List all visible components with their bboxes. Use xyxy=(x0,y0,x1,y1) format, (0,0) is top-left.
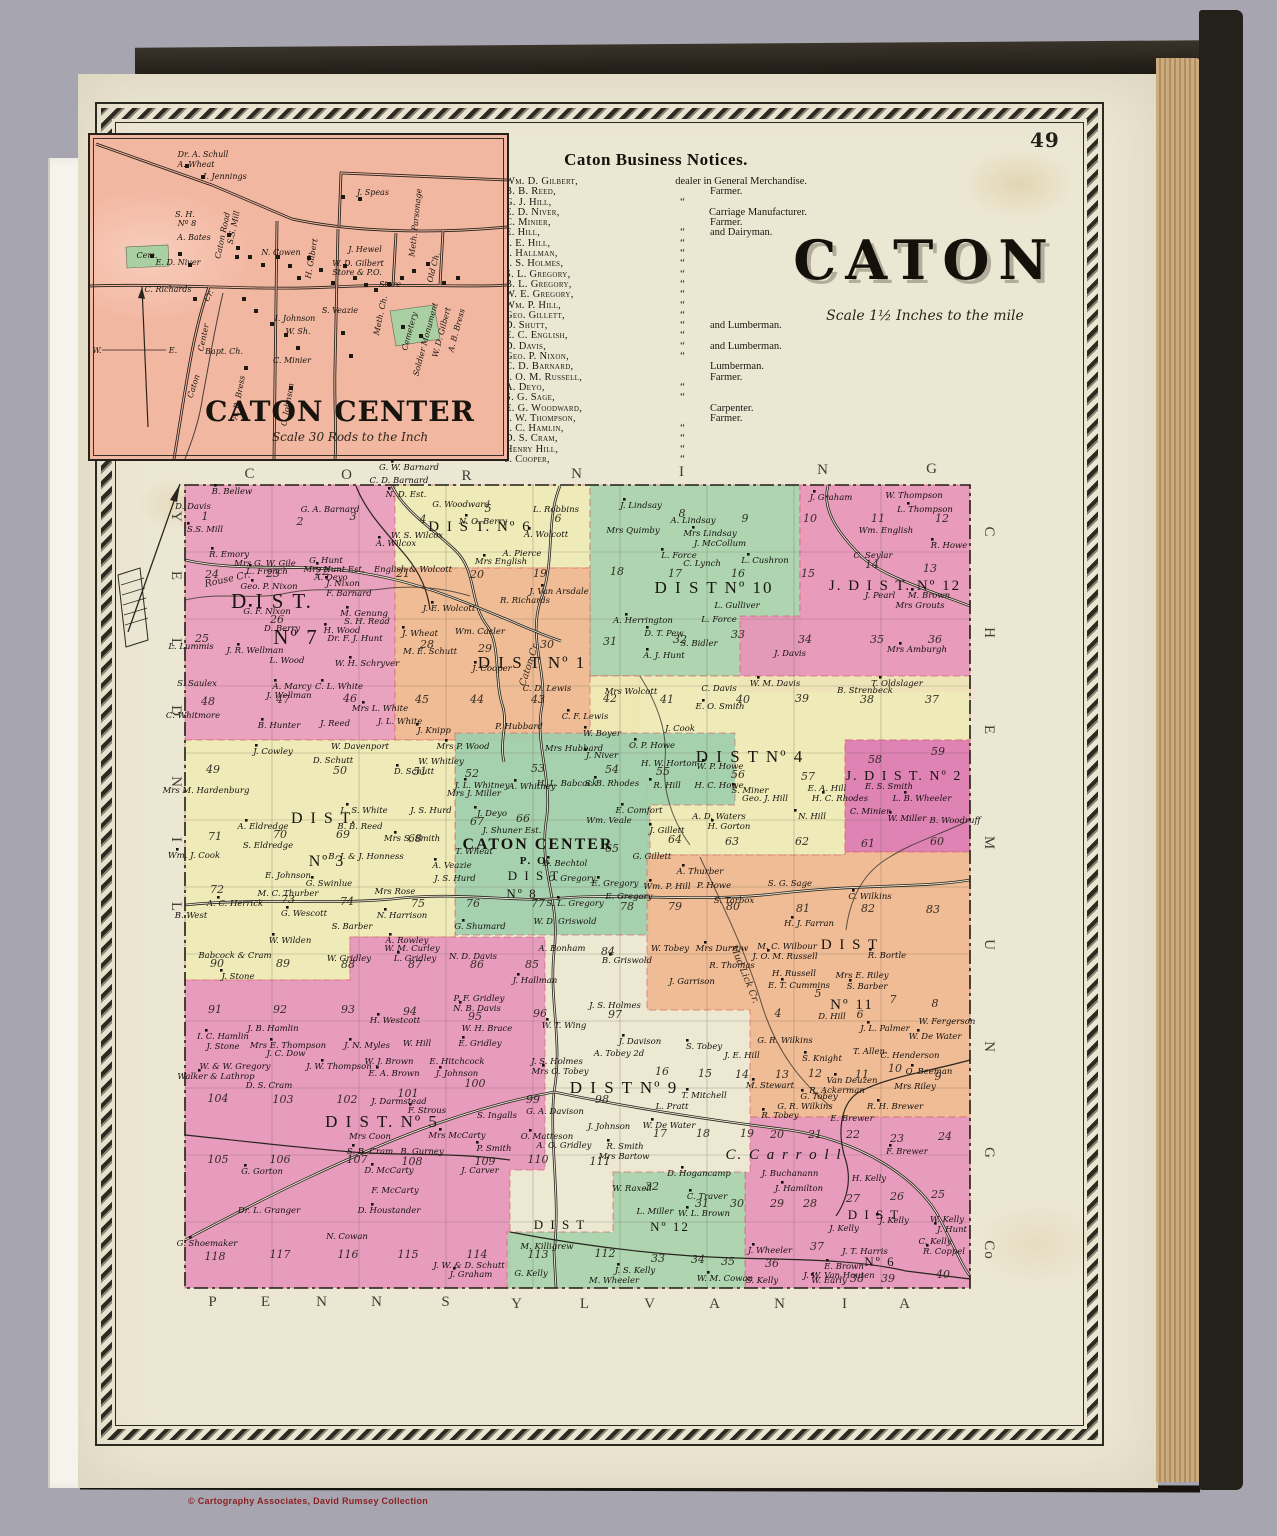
map-title: CATON xyxy=(775,228,1075,292)
svg-text:A. Bates: A. Bates xyxy=(176,233,211,242)
svg-text:H. Gilbert: H. Gilbert xyxy=(303,237,319,280)
notice-trade xyxy=(710,445,807,455)
collection-credit: © Cartography Associates, David Rumsey C… xyxy=(188,1496,428,1506)
inset-map-caton-center: Dr. A. SchullA. WheatI. JenningsJ. Speas… xyxy=(88,133,509,461)
svg-text:J. Speas: J. Speas xyxy=(355,188,389,197)
svg-text:S. H.: S. H. xyxy=(175,210,195,219)
svg-text:Meth. Parsonage: Meth. Parsonage xyxy=(407,188,423,259)
svg-text:Cr.: Cr. xyxy=(202,288,216,303)
notice-ditto: “ xyxy=(655,198,710,208)
notice-ditto xyxy=(655,404,710,414)
svg-text:I. Jennings: I. Jennings xyxy=(202,172,246,181)
notice-ditto xyxy=(655,362,710,372)
svg-text:E. D. Niver: E. D. Niver xyxy=(155,258,202,267)
notice-trade xyxy=(710,393,807,403)
svg-text:W.: W. xyxy=(92,346,101,355)
book-fore-edge xyxy=(1156,58,1200,1482)
svg-text:S. Veazie: S. Veazie xyxy=(322,306,359,315)
notice-row: J. Cooper,“ xyxy=(505,455,807,465)
svg-text:C. Minier: C. Minier xyxy=(273,356,312,365)
notice-trade: Farmer. xyxy=(710,414,807,424)
business-notices: Caton Business Notices. Wm. D. Gilbert,d… xyxy=(505,150,807,465)
svg-text:Bapt. Ch.: Bapt. Ch. xyxy=(204,347,243,356)
notice-row: Henry Hill,“ xyxy=(505,445,807,455)
notice-ditto xyxy=(654,208,709,218)
svg-text:J. Hewel: J. Hewel xyxy=(346,245,382,254)
svg-text:Cem.: Cem. xyxy=(137,251,158,260)
svg-text:Store: Store xyxy=(379,280,401,289)
svg-text:I. Johnson: I. Johnson xyxy=(274,314,316,323)
notice-ditto xyxy=(630,177,676,187)
svg-text:A. Wheat: A. Wheat xyxy=(177,160,216,169)
page-number: 49 xyxy=(1030,128,1060,152)
notice-row: J. O. M. Russell,Farmer. xyxy=(505,373,807,383)
inset-title: CATON CENTER xyxy=(190,395,490,428)
notice-ditto: “ xyxy=(655,455,710,465)
map-title-block: CATON Scale 1½ Inches to the mile xyxy=(775,228,1075,324)
svg-text:W. Sh.: W. Sh. xyxy=(285,327,310,336)
notice-name: J. Cooper, xyxy=(505,455,655,465)
notice-ditto: “ xyxy=(655,352,710,362)
svg-text:Nº 8: Nº 8 xyxy=(177,219,196,228)
svg-text:N. Cowen: N. Cowen xyxy=(260,248,300,257)
notice-ditto: “ xyxy=(655,393,710,403)
notice-trade xyxy=(710,383,807,393)
map-scale-note: Scale 1½ Inches to the mile xyxy=(775,308,1075,324)
svg-text:E.: E. xyxy=(168,346,177,355)
notice-trade: and Lumberman. xyxy=(710,342,807,352)
book-cover-right xyxy=(1199,10,1243,1490)
notice-trade: Farmer. xyxy=(710,187,807,197)
notice-trade xyxy=(710,455,807,465)
notice-trade xyxy=(710,424,807,434)
svg-text:C. Richards: C. Richards xyxy=(145,285,192,294)
svg-text:W. D. Gilbert: W. D. Gilbert xyxy=(332,259,384,268)
notice-row: S. G. Sage,“ xyxy=(505,393,807,403)
business-notices-title: Caton Business Notices. xyxy=(505,150,807,170)
inset-compass: W.E. xyxy=(92,287,177,427)
business-notices-list: Wm. D. Gilbert,dealer in General Merchan… xyxy=(505,177,807,465)
svg-text:Store & P.O.: Store & P.O. xyxy=(332,268,381,277)
notice-name: S. G. Sage, xyxy=(505,393,655,403)
inset-scale-note: Scale 30 Rods to the Inch xyxy=(220,430,480,444)
atlas-page: 49 Caton Business Notices. Wm. D. Gilber… xyxy=(78,74,1158,1488)
notice-trade xyxy=(710,434,807,444)
svg-text:Meth. Ch.: Meth. Ch. xyxy=(372,295,389,337)
notice-row: E. Hill,“and Dairyman. xyxy=(505,228,807,238)
svg-text:Dr. A. Schull: Dr. A. Schull xyxy=(177,150,229,159)
notice-trade: Farmer. xyxy=(710,373,807,383)
